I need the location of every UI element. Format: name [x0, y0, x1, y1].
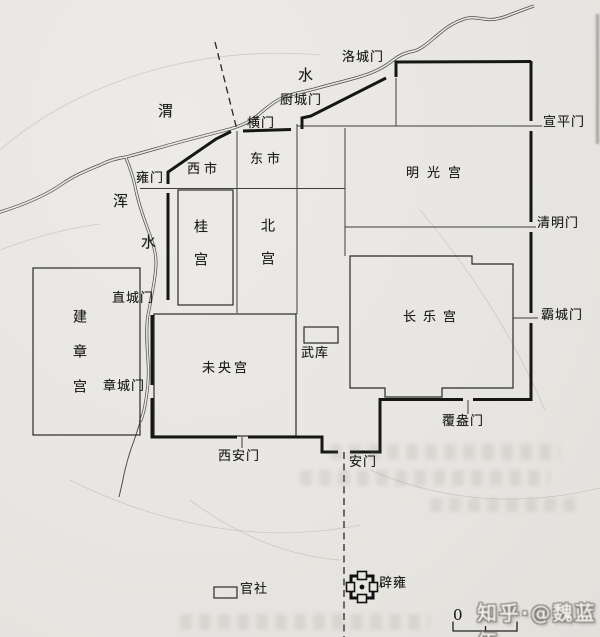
label-arsenal-wuku: 武库	[301, 347, 329, 360]
label-gate-yongmen: 雍门	[136, 172, 164, 185]
label-gate-xianmen: 西安门	[218, 450, 260, 463]
label-market-xishi: 西市	[187, 163, 221, 176]
label-gate-anmen: 安门	[349, 456, 377, 469]
contour-lines	[0, 53, 600, 560]
label-scale-zero: 0	[453, 608, 464, 623]
biyong-symbol	[347, 572, 378, 603]
city-walls	[152, 61, 533, 452]
label-palace-beigong: 北宫	[260, 218, 274, 284]
label-palace-mingguanggong: 明光宫	[406, 167, 469, 180]
label-gate-zhangchengmen: 章城门	[103, 380, 145, 393]
changlegong-outline	[350, 256, 513, 397]
label-hun-river-char-hun: 浑	[113, 194, 129, 209]
label-wei-river-char-shui: 水	[298, 68, 314, 83]
label-hun-river-char-shui: 水	[141, 235, 157, 250]
label-palace-guigong: 桂宫	[193, 219, 207, 285]
label-gate-luochengmen: 洛城门	[342, 51, 384, 64]
label-palace-jianzhanggong: 建章宫	[72, 309, 86, 414]
label-gate-qingmingmen: 清明门	[537, 217, 579, 230]
label-legend-biyong: 辟雍	[379, 577, 407, 590]
zhihu-watermark: 知乎·@魏蓝伍	[477, 597, 600, 637]
label-palace-weiyanggong: 未央宫	[202, 362, 250, 375]
label-gate-chuchengmen: 厨城门	[280, 94, 322, 107]
label-gate-zhichengmen: 直城门	[112, 292, 154, 305]
label-market-dongshi: 东市	[250, 153, 284, 166]
label-legend-guanshe: 官社	[240, 583, 268, 596]
label-palace-changlegong: 长乐宫	[403, 311, 463, 324]
changan-city-map: 渭水浑水洛城门厨城门横门雍门西市东市宣平门明光宫清明门桂宫北宫直城门建章宫章城门…	[0, 0, 600, 637]
label-gate-xuanpingmen: 宣平门	[543, 116, 585, 129]
river-wei	[0, 6, 534, 213]
label-gate-hengmen: 横门	[247, 117, 275, 130]
wuku-outline	[304, 327, 338, 343]
guanshe-legend-swatch	[214, 587, 237, 598]
label-wei-river-char-wei: 渭	[158, 104, 174, 119]
label-gate-bachengmen: 霸城门	[541, 309, 583, 322]
label-gate-fuangmen: 覆盎门	[442, 415, 484, 428]
